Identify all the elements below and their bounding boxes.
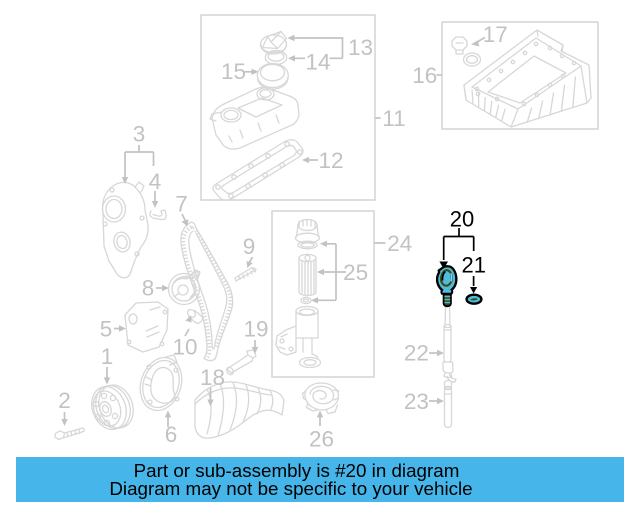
svg-text:23: 23 — [404, 389, 429, 414]
svg-text:16: 16 — [412, 63, 437, 88]
svg-text:14: 14 — [305, 50, 330, 75]
svg-text:15: 15 — [221, 59, 246, 84]
svg-text:11: 11 — [382, 106, 405, 131]
svg-text:8: 8 — [142, 276, 155, 301]
svg-text:25: 25 — [343, 260, 368, 285]
svg-text:5: 5 — [100, 317, 113, 342]
svg-text:17: 17 — [483, 22, 508, 47]
svg-text:6: 6 — [165, 422, 178, 447]
svg-text:2: 2 — [58, 388, 71, 413]
svg-text:4: 4 — [149, 169, 162, 194]
svg-text:13: 13 — [348, 35, 373, 60]
svg-text:21: 21 — [462, 253, 486, 278]
svg-text:18: 18 — [200, 365, 225, 390]
svg-text:9: 9 — [243, 234, 256, 259]
svg-text:Diagram may not be specific to: Diagram may not be specific to your vehi… — [109, 478, 472, 499]
svg-text:20: 20 — [450, 207, 474, 232]
svg-text:26: 26 — [309, 427, 334, 452]
svg-text:7: 7 — [175, 192, 188, 217]
svg-text:10: 10 — [172, 335, 197, 360]
svg-text:3: 3 — [133, 122, 146, 147]
svg-text:1: 1 — [101, 344, 114, 369]
svg-text:22: 22 — [404, 341, 429, 366]
svg-text:12: 12 — [318, 148, 343, 173]
svg-text:24: 24 — [387, 231, 412, 256]
svg-text:19: 19 — [243, 317, 268, 342]
